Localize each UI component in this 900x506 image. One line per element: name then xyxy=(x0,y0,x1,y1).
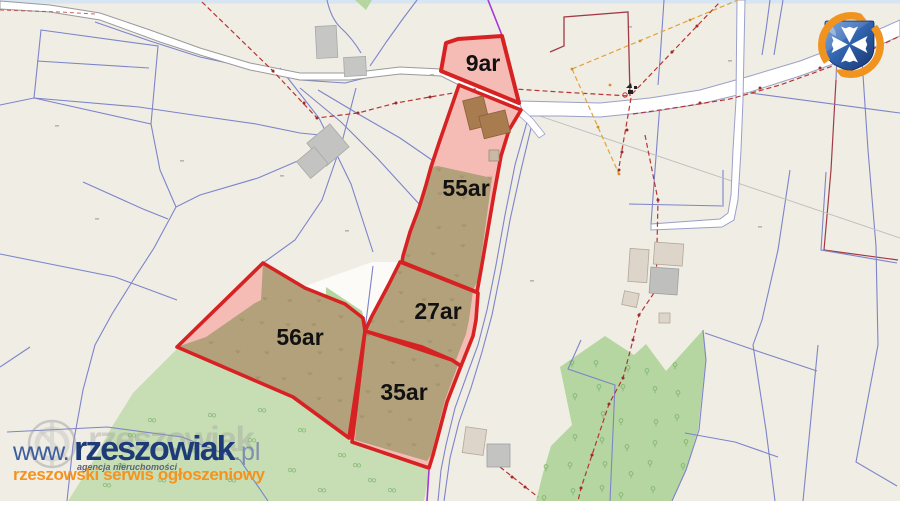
svg-text:www.: www. xyxy=(12,438,69,466)
svg-text:56ar: 56ar xyxy=(276,324,323,350)
svg-text:27ar: 27ar xyxy=(414,298,461,324)
svg-text:9ar: 9ar xyxy=(466,50,501,76)
svg-text:rzeszowski serwis ogłoszeniowy: rzeszowski serwis ogłoszeniowy xyxy=(13,465,266,484)
svg-text:.pl: .pl xyxy=(234,438,260,466)
svg-text:35ar: 35ar xyxy=(380,379,427,405)
svg-text:55ar: 55ar xyxy=(442,175,489,201)
